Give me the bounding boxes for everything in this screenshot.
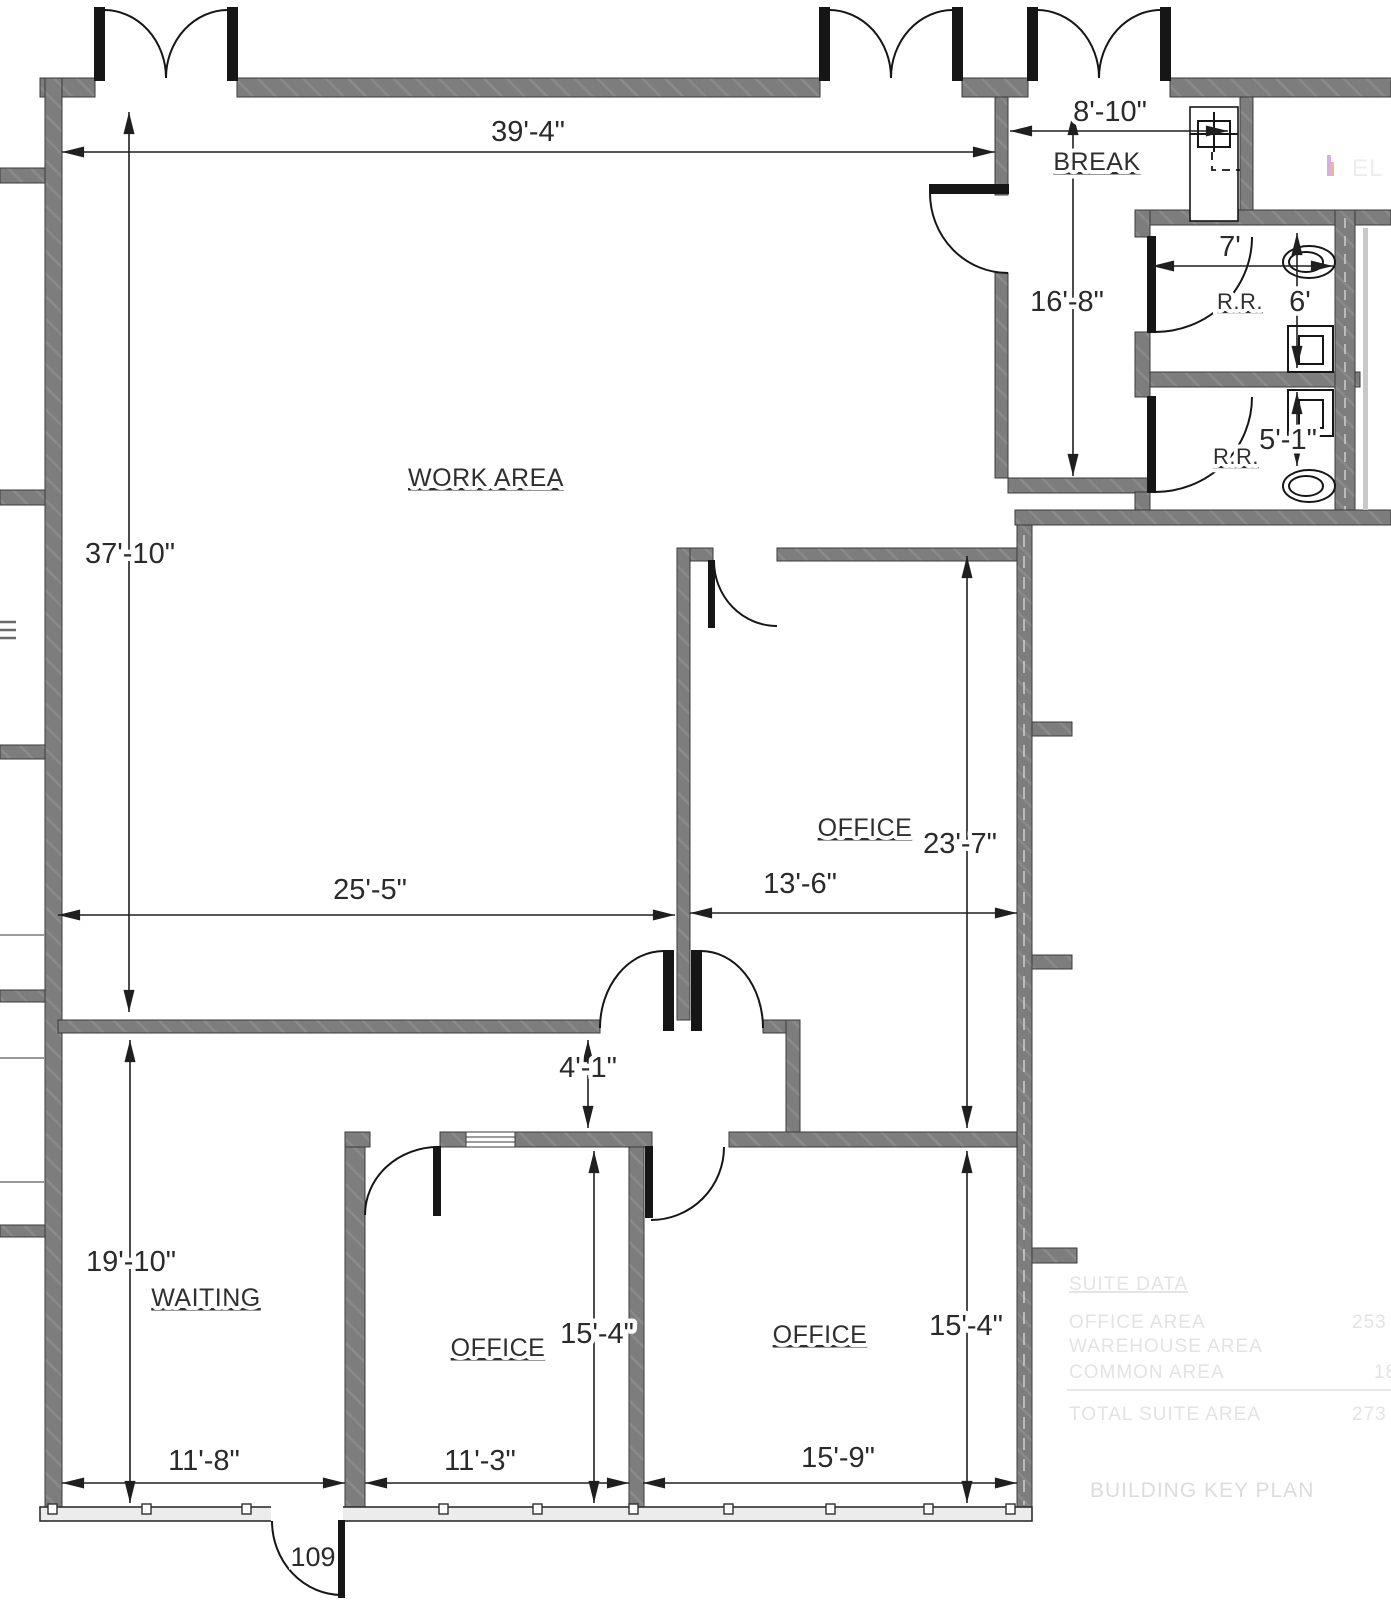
wall-south-top-a (345, 1132, 370, 1147)
wall-south-top-d (729, 1132, 1017, 1147)
label-door-number: 109 (290, 1542, 335, 1572)
ghost-row-label: COMMON AREA (1069, 1362, 1225, 1383)
wall-rr-left-a (1135, 210, 1150, 237)
dim-break-depth: 16'-8" (1030, 286, 1104, 318)
dim-office-se-width: 15'-9" (801, 1442, 875, 1474)
dim-hall-width: 4'-1" (559, 1052, 617, 1084)
wall-south-top-b (440, 1132, 466, 1147)
dim-office-ne-depth: 23'-7" (923, 828, 997, 860)
doors (95, 8, 1252, 1597)
wall-office-ne-left (677, 548, 690, 1020)
label-waiting: WAITING (151, 1284, 261, 1312)
dim-rr-upper-depth: 6' (1289, 286, 1311, 318)
sink-icon (1288, 326, 1333, 372)
ghost-caption: BUILDING KEY PLAN (1090, 1479, 1314, 1502)
wall-break-left-upper (995, 97, 1008, 195)
wall-neighbor-stub (0, 990, 45, 1002)
dim-break-width: 8'-10" (1073, 96, 1147, 128)
wall-break-bottom (1008, 478, 1150, 493)
break-door-icon (930, 185, 1008, 273)
dim-office-sw-width: 11'-3" (444, 1445, 516, 1477)
wall-neighbor-stub (0, 745, 45, 759)
ghost-row-value: 18 (1374, 1362, 1391, 1383)
double-door-icon (95, 8, 237, 80)
floor-plan-drawing: 39'-4" 8'-10" 16'-8" 7' 6' 5'-1" 37'-10"… (0, 0, 1391, 1600)
wall-top-right1 (962, 78, 1028, 97)
utility-closet (1190, 107, 1240, 221)
wall-rr-left-b (1135, 332, 1150, 397)
dim-waiting-width: 11'-8" (168, 1445, 240, 1477)
interior-window (466, 1132, 515, 1147)
wall-left (45, 78, 62, 1515)
dim-work-depth: 37'-10" (85, 538, 175, 570)
label-restroom-upper: R.R. (1217, 289, 1263, 314)
double-door-icon (820, 8, 962, 80)
wall-office-ne-top1 (690, 548, 713, 561)
label-work-area: WORK AREA (408, 464, 564, 492)
dim-top-width: 39'-4" (491, 116, 565, 148)
wall-work-waiting (58, 1020, 600, 1033)
wall-office-sw-left (345, 1147, 365, 1507)
wall-rr-bottom (1015, 510, 1391, 525)
wall-office-ne-top2 (777, 548, 1017, 561)
storefront-wall (40, 1504, 1032, 1524)
wall-right-stub (1032, 1248, 1077, 1263)
ghost-side-note: EL (1352, 155, 1383, 182)
wall-neighbor-stub (0, 490, 45, 505)
dim-office-se-depth: 15'-4" (929, 1310, 1003, 1342)
ghost-row-label: WAREHOUSE AREA (1069, 1336, 1263, 1357)
label-office-ne: OFFICE (818, 814, 913, 842)
double-door-icon (1028, 8, 1170, 80)
wall-rr-left-c (1135, 492, 1150, 510)
wall-neighbor-stub (0, 168, 45, 183)
dim-office-sw-depth: 15'-4" (560, 1318, 634, 1350)
wall-top-right2 (1170, 78, 1391, 97)
label-restroom-lower: R.R. (1213, 444, 1259, 469)
label-office-se: OFFICE (773, 1321, 868, 1349)
office-se-door-icon (646, 1147, 724, 1220)
dim-rr-width: 7' (1219, 231, 1241, 263)
toilet-icon (1283, 470, 1335, 502)
office-sw-door-icon (365, 1147, 440, 1215)
wall-top-mid (237, 78, 820, 97)
ghost-title: SUITE DATA (1069, 1274, 1188, 1295)
floor-plan-page: 39'-4" 8'-10" 16'-8" 7' 6' 5'-1" 37'-10"… (0, 0, 1391, 1600)
wall-top-right-return (1240, 97, 1253, 223)
label-break: BREAK (1053, 148, 1140, 176)
dimension-labels: 39'-4" 8'-10" 16'-8" 7' 6' 5'-1" 37'-10"… (85, 96, 1317, 1477)
ghost-total-value: 273 (1352, 1404, 1387, 1425)
wall-rr-divider (1150, 372, 1360, 387)
toilet-icon (1283, 246, 1335, 278)
wall-rr-outer-line (1363, 228, 1368, 510)
dim-office-ne-width: 13'-6" (763, 868, 837, 900)
dim-waiting-depth: 19'-10" (86, 1246, 176, 1278)
wall-hall-jog-v (786, 1020, 800, 1136)
office-ne-door-icon (709, 561, 777, 627)
wall-neighbor-stub (0, 1225, 45, 1237)
color-artifact-mark (1327, 155, 1334, 176)
wall-right-stub (1032, 722, 1072, 736)
cut-off-text-mark (0, 622, 16, 638)
ghost-total-label: TOTAL SUITE AREA (1069, 1404, 1261, 1425)
dim-rr-lower-width: 5'-1" (1259, 424, 1317, 456)
dim-work-width: 25'-5" (333, 874, 407, 906)
room-labels: WORK AREA BREAK R.R. R.R. OFFICE WAITING… (151, 148, 1263, 1572)
storefront-door-gap (271, 1504, 343, 1524)
ghost-row-value: 253 (1352, 1312, 1387, 1333)
ghost-row-label: OFFICE AREA (1069, 1312, 1206, 1333)
wall-right-stub (1032, 955, 1072, 969)
wall-south-top-c (515, 1132, 652, 1147)
label-office-sw: OFFICE (451, 1334, 546, 1362)
wall-break-left-lower (995, 273, 1008, 478)
